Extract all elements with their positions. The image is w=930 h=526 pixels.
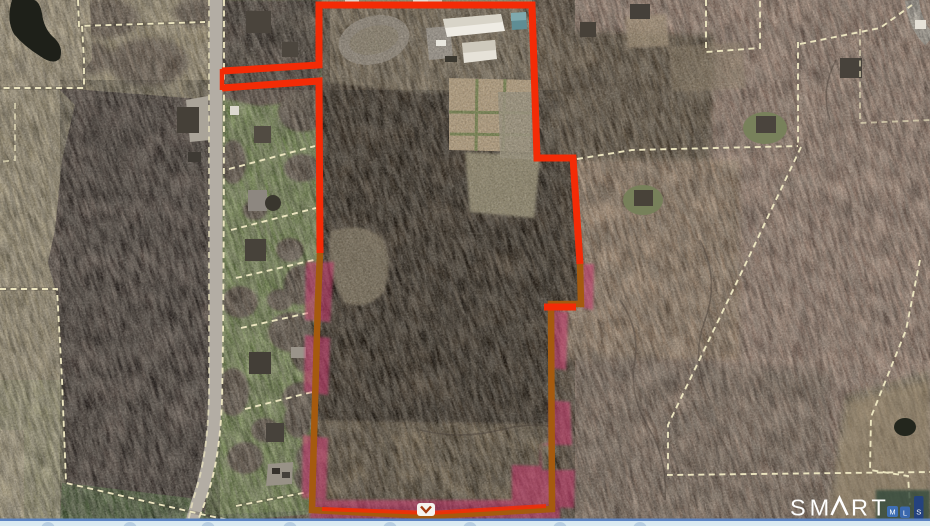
svg-text:SM: SM (790, 495, 833, 521)
svg-text:M: M (889, 508, 895, 517)
svg-text:L: L (903, 509, 907, 518)
svg-text:S: S (916, 508, 921, 517)
svg-text:RT: RT (851, 495, 890, 521)
